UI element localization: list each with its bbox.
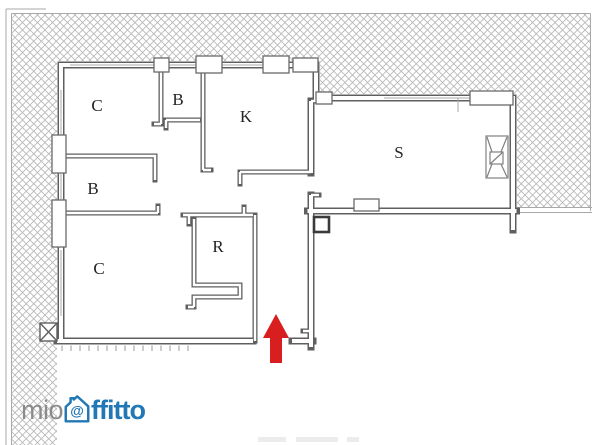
- at-glyph: @: [70, 402, 84, 418]
- room-label-c1: C: [91, 96, 102, 115]
- walls: [57, 65, 517, 347]
- floorplan-image: C B K S B C R mio @ ffitto: [0, 0, 600, 445]
- railing-ticks: [62, 346, 188, 352]
- logo-prefix: mio: [21, 397, 63, 424]
- house-at-icon: @: [62, 394, 92, 424]
- faint-footer-mark: [258, 437, 286, 442]
- room-label-r: R: [212, 237, 224, 256]
- mioaffitto-logo: mio @ ffitto: [21, 394, 145, 426]
- room-label-b1: B: [172, 90, 183, 109]
- entrance-arrow-icon: [263, 314, 289, 363]
- wall-cores: [57, 65, 517, 347]
- window-lines: [61, 65, 472, 316]
- flue-symbol-icon: [486, 136, 508, 178]
- room-label-k: K: [240, 107, 253, 126]
- room-label-b2: B: [87, 179, 98, 198]
- corner-window-icon: [40, 323, 57, 341]
- column-icon: [314, 217, 329, 232]
- faint-footer-mark: [296, 437, 338, 442]
- logo-suffix: ffitto: [91, 397, 145, 424]
- room-label-c2: C: [93, 259, 104, 278]
- floorplan-canvas: C B K S B C R: [0, 0, 600, 445]
- faint-footer-mark: [347, 437, 359, 442]
- room-label-s: S: [394, 143, 403, 162]
- terrace-hatch: [12, 14, 590, 445]
